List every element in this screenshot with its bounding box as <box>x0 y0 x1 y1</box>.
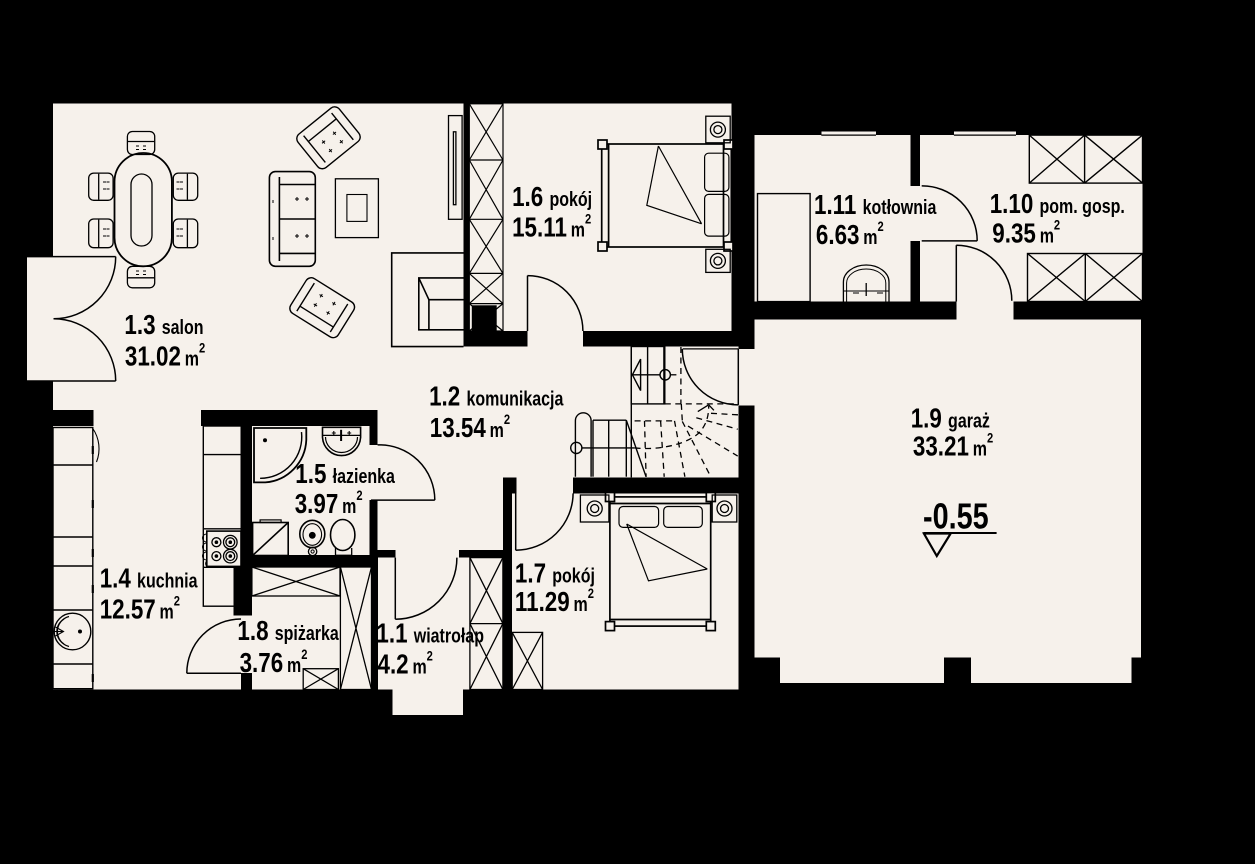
svg-text:-0.55: -0.55 <box>923 496 989 537</box>
